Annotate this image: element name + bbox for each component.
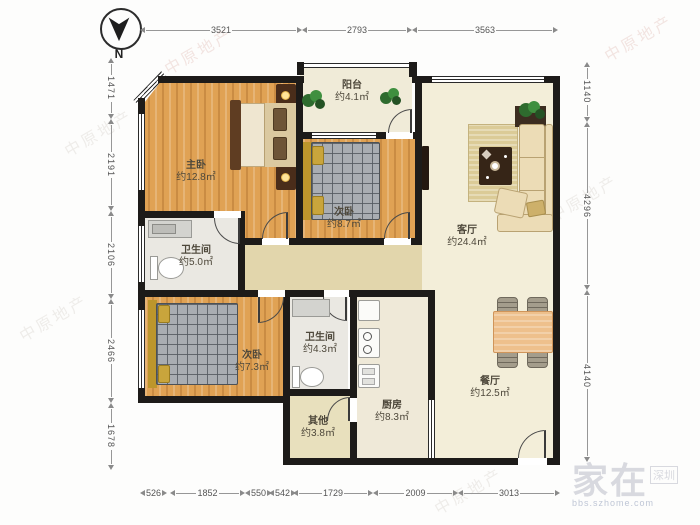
sofa-cushion-line <box>519 190 545 191</box>
pillow <box>273 137 287 160</box>
watermark-text: 中原地产 <box>14 288 92 347</box>
room-label-bathroom2: 卫生间约4.3㎡ <box>286 332 354 356</box>
dim-right-3: 4140 <box>580 290 594 462</box>
dining-table <box>493 311 553 353</box>
bedroom3-window <box>138 310 145 388</box>
table-decor <box>504 155 507 158</box>
wall <box>415 76 422 245</box>
dim-top-1: 3521 <box>140 24 302 36</box>
toilet-tank <box>292 366 300 388</box>
sofa-chaise <box>497 214 553 232</box>
wall <box>138 396 290 403</box>
door-gap <box>384 238 411 245</box>
bathroom1-basin <box>152 224 176 234</box>
door-gap <box>324 290 349 297</box>
dim-bottom-6: 2009 <box>373 487 458 499</box>
lamp-icon <box>281 173 290 182</box>
dim-bottom-2: 1852 <box>170 487 245 499</box>
room-label-dining: 餐厅约12.5㎡ <box>460 376 520 400</box>
dim-bottom-5: 1729 <box>293 487 373 499</box>
logo-url: bbs.szhome.com <box>572 498 697 508</box>
wall-post <box>297 62 304 75</box>
stove-burner <box>363 332 372 341</box>
dim-top-3: 3563 <box>412 24 558 36</box>
compass-arrow-icon <box>102 10 136 44</box>
balcony-railing <box>300 63 414 68</box>
counter-detail <box>362 378 375 385</box>
door-gap <box>350 398 357 422</box>
wall <box>290 389 350 396</box>
tv <box>422 146 429 190</box>
table-bowl <box>490 161 500 171</box>
dim-bottom-4: 542 <box>269 487 293 499</box>
room-label-bathroom1: 卫生间约5.0㎡ <box>162 245 230 269</box>
wall <box>350 422 357 458</box>
room-label-bedroom3: 次卧约7.3㎡ <box>222 350 282 374</box>
lamp-icon <box>281 91 290 100</box>
wall-post <box>409 62 417 77</box>
door-gap <box>262 238 289 245</box>
hallway-floor <box>242 245 422 292</box>
table-decor <box>486 176 489 179</box>
living-window <box>432 76 544 83</box>
dining-chair <box>527 352 548 368</box>
bathroom1-window <box>138 226 145 282</box>
watermark-text: 中原地产 <box>599 8 677 67</box>
pillow <box>312 146 324 165</box>
room-label-kitchen: 厨房约8.3㎡ <box>362 400 422 424</box>
dim-right-2: 4296 <box>580 122 594 290</box>
room-label-utility: 其他约3.8㎡ <box>288 416 348 440</box>
wall <box>553 76 560 465</box>
master-window <box>138 114 145 190</box>
kitchen-sink <box>358 300 380 321</box>
dim-left-1: 1471 <box>104 58 118 119</box>
floorplan-image: 中原地产 中原地产 中原地产 中原地产 中原地产 中原地产 中原地产 中原地产 … <box>0 0 700 525</box>
compass-icon <box>100 8 142 50</box>
room-label-bedroom2: 次卧约8.7㎡ <box>314 207 374 231</box>
room-label-balcony: 阳台约4.1㎡ <box>322 80 382 104</box>
dining-chair <box>497 352 518 368</box>
balcony-door-window <box>312 132 376 139</box>
pillow <box>273 108 287 131</box>
kitchen-sliding-door <box>428 400 435 458</box>
dim-bottom-1: 526 <box>140 487 170 499</box>
dim-bottom-7: 3013 <box>458 487 560 499</box>
stove-burner <box>363 345 372 354</box>
bed-footboard <box>230 100 241 170</box>
dim-left-3: 2106 <box>104 211 118 299</box>
sofa-pillow <box>526 200 546 218</box>
dim-bottom-3: 550 <box>245 487 269 499</box>
door-gap <box>518 458 547 465</box>
counter-detail <box>362 368 375 375</box>
bathroom2-sink <box>292 299 330 317</box>
door-gap <box>214 211 241 218</box>
dim-left-4: 2466 <box>104 299 118 403</box>
logo-city-badge: 深圳 <box>650 466 678 484</box>
wall <box>428 290 435 400</box>
nightstand <box>276 166 296 190</box>
pillow <box>158 305 170 323</box>
room-label-living: 客厅约24.4㎡ <box>437 225 497 249</box>
sofa-back <box>545 124 553 224</box>
room-label-master: 主卧约12.8㎡ <box>166 160 226 184</box>
wall <box>158 76 304 83</box>
dim-top-2: 2793 <box>302 24 412 36</box>
pillow <box>158 365 170 383</box>
toilet-bowl <box>300 367 324 387</box>
dim-left-2: 2191 <box>104 119 118 211</box>
dim-right-1: 1140 <box>580 62 594 122</box>
sofa-cushion-line <box>519 157 545 158</box>
door-gap <box>386 132 413 139</box>
dim-left-5: 1678 <box>104 403 118 470</box>
watermark-text: 中原地产 <box>59 103 137 162</box>
site-watermark-logo: 家在深圳 bbs.szhome.com <box>572 452 697 508</box>
toilet-tank <box>150 256 158 280</box>
door-gap <box>258 290 285 297</box>
logo-text: 家在 <box>572 460 648 501</box>
